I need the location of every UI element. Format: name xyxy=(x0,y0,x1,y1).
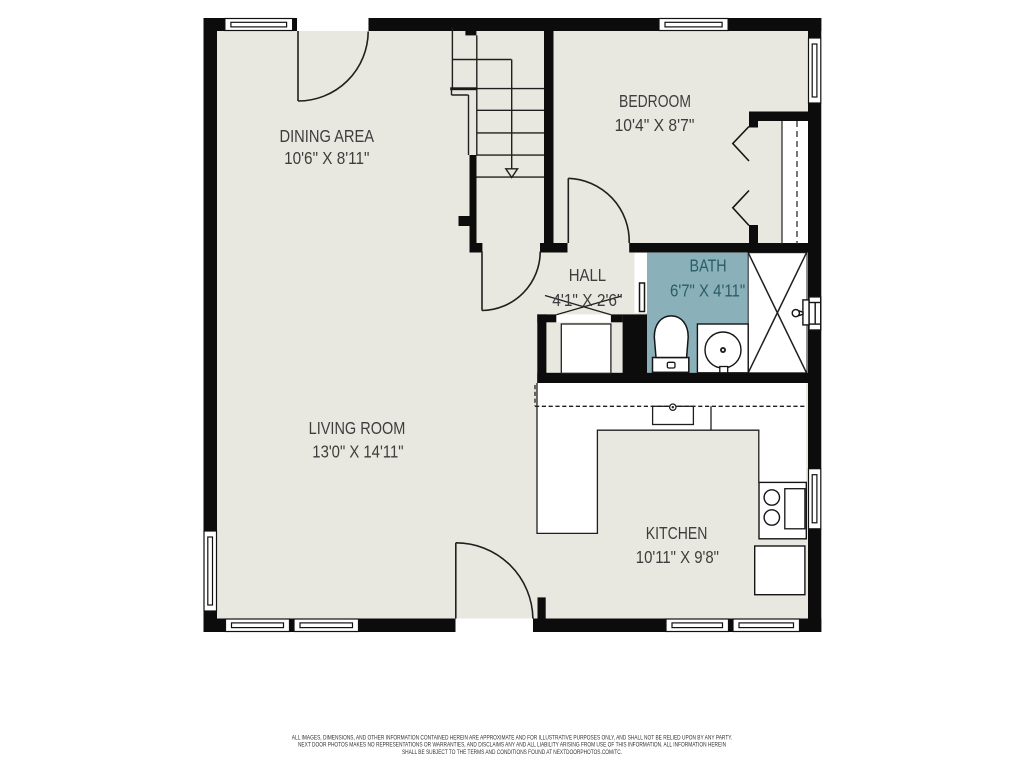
svg-text:13'0" X 14'11": 13'0" X 14'11" xyxy=(312,442,403,462)
svg-text:BEDROOM: BEDROOM xyxy=(619,91,691,111)
svg-text:6'7" X 4'11": 6'7" X 4'11" xyxy=(670,281,745,301)
svg-text:4'1" X 2'6": 4'1" X 2'6" xyxy=(552,290,622,310)
svg-text:HALL: HALL xyxy=(569,265,606,285)
svg-text:NEXT DOOR PHOTOS MAKES NO REPR: NEXT DOOR PHOTOS MAKES NO REPRESENTATION… xyxy=(298,742,726,749)
svg-text:10'11" X 9'8": 10'11" X 9'8" xyxy=(636,547,719,567)
svg-text:10'6" X 8'11": 10'6" X 8'11" xyxy=(284,148,369,168)
svg-text:ALL IMAGES, DIMENSIONS, AND OT: ALL IMAGES, DIMENSIONS, AND OTHER INFORM… xyxy=(292,734,733,741)
svg-text:KITCHEN: KITCHEN xyxy=(646,523,708,543)
svg-text:LIVING ROOM: LIVING ROOM xyxy=(309,418,406,438)
svg-text:10'4" X 8'7": 10'4" X 8'7" xyxy=(615,115,695,135)
svg-text:SHALL BE SUBJECT TO THE TERMS: SHALL BE SUBJECT TO THE TERMS AND CONDIT… xyxy=(402,749,622,756)
svg-text:DINING AREA: DINING AREA xyxy=(280,126,375,146)
svg-text:BATH: BATH xyxy=(690,255,727,275)
